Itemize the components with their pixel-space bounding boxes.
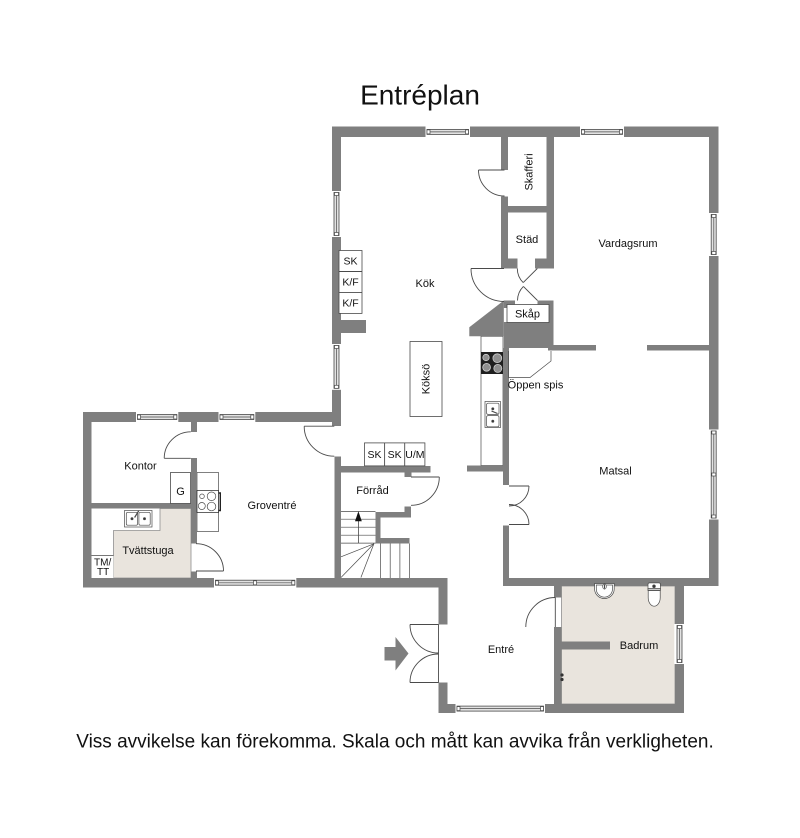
svg-text:K/F: K/F: [342, 298, 358, 310]
svg-text:Förråd: Förråd: [356, 485, 388, 497]
svg-text:Viss avvikelse kan förekomma.: Viss avvikelse kan förekomma. Skala och …: [76, 732, 714, 753]
svg-text:Vardagsrum: Vardagsrum: [598, 238, 657, 250]
svg-text:SK: SK: [388, 449, 402, 461]
svg-text:Kök: Kök: [416, 278, 435, 290]
svg-text:Skåp: Skåp: [515, 309, 540, 321]
svg-text:Köksö: Köksö: [421, 364, 433, 395]
svg-text:Öppen spis: Öppen spis: [508, 380, 564, 392]
svg-text:Skafferi: Skafferi: [524, 153, 536, 190]
svg-text:Matsal: Matsal: [599, 466, 631, 478]
svg-text:Tvättstuga: Tvättstuga: [122, 545, 174, 557]
svg-text:U/M: U/M: [405, 449, 424, 461]
svg-text:Groventré: Groventré: [248, 500, 297, 512]
svg-text:SK: SK: [367, 449, 381, 461]
svg-text:Badrum: Badrum: [620, 640, 659, 652]
svg-text:G: G: [176, 486, 185, 498]
svg-text:TT: TT: [97, 567, 109, 578]
svg-text:Entré: Entré: [488, 644, 514, 656]
svg-text:Städ: Städ: [516, 234, 539, 246]
svg-text:Kontor: Kontor: [124, 461, 157, 473]
svg-text:SK: SK: [343, 256, 357, 268]
svg-text:K/F: K/F: [342, 277, 358, 289]
svg-text:Entréplan: Entréplan: [360, 80, 480, 111]
